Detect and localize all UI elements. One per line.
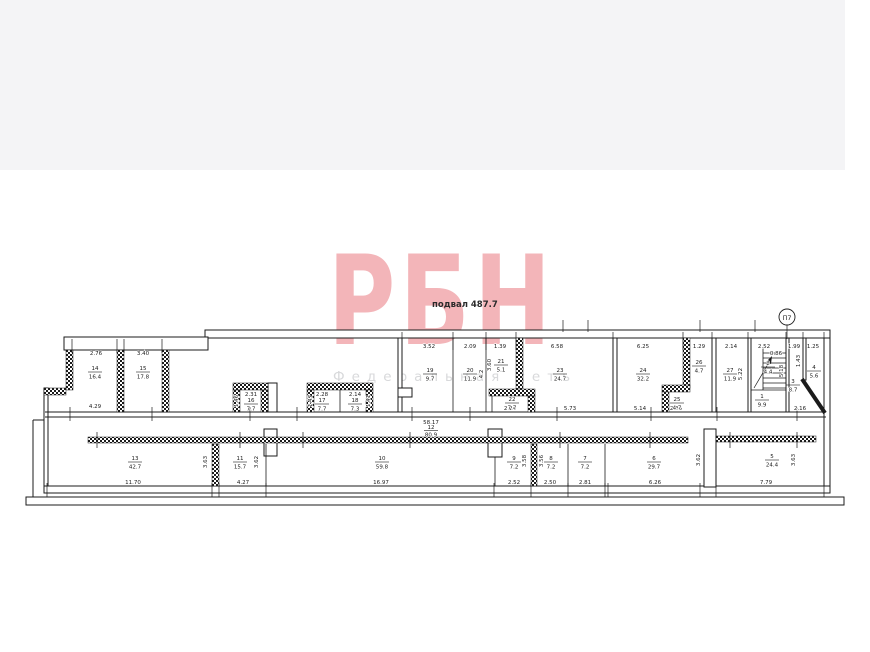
room-label: 19.9 [755, 394, 769, 409]
dim-label: 4.2 [479, 370, 485, 379]
svg-text:8: 8 [549, 456, 553, 462]
room-label: 2011.9 [463, 368, 477, 383]
svg-text:3: 3 [791, 379, 795, 385]
dim-label: 3.56 [539, 454, 545, 467]
svg-text:9: 9 [512, 456, 516, 462]
svg-text:16: 16 [248, 398, 255, 404]
dim-label: 1.41 [366, 395, 372, 407]
dim-label: 0.86 [770, 351, 783, 357]
svg-text:42.7: 42.7 [129, 465, 142, 471]
dim-label: 7.79 [760, 480, 773, 486]
svg-text:14: 14 [92, 366, 99, 372]
dim-label: 1.47 [308, 394, 314, 407]
svg-text:6: 6 [652, 456, 656, 462]
svg-text:7.7: 7.7 [318, 407, 327, 413]
svg-text:11: 11 [237, 456, 244, 462]
dim-label: 1.99 [788, 344, 801, 350]
dim-label: 3.63 [203, 455, 209, 468]
svg-text:29.7: 29.7 [648, 465, 661, 471]
room-label: 187.3 [348, 398, 362, 413]
svg-text:2: 2 [766, 361, 770, 367]
dim-label: 5.14 [634, 406, 647, 412]
dim-label: 2.16 [794, 406, 807, 412]
dim-label: 4.29 [89, 404, 102, 410]
dim-label: 5.18 [779, 364, 785, 377]
svg-text:4.7: 4.7 [695, 369, 704, 375]
room-label: 1280.9 [424, 425, 438, 439]
svg-text:1: 1 [760, 394, 764, 400]
dim-label: 16.97 [373, 480, 389, 486]
dim-label: 2.50 [544, 480, 557, 486]
dim-label: 3.62 [254, 456, 260, 468]
svg-text:7.3: 7.3 [351, 407, 360, 413]
svg-text:4.7: 4.7 [673, 406, 682, 412]
dim-label: 3.40 [137, 351, 150, 357]
svg-text:59.8: 59.8 [376, 465, 389, 471]
svg-text:15.7: 15.7 [234, 465, 247, 471]
dim-label: 2.76 [90, 351, 103, 357]
floor-plan: П7 подвал 487.7 2.76 3.40 4.29 2.31 2.28… [0, 0, 870, 652]
svg-text:16.4: 16.4 [89, 375, 102, 381]
page: РБН Федеральная сеть [0, 0, 870, 652]
svg-text:17: 17 [319, 398, 326, 404]
room-label: 77.2 [578, 456, 592, 471]
room-label: 1059.8 [375, 456, 389, 471]
room-label: 215.1 [494, 359, 508, 374]
room-label: 1342.7 [128, 456, 142, 471]
svg-text:7.2: 7.2 [547, 465, 556, 471]
room-label: 177.7 [315, 398, 329, 413]
dim-label: 6.25 [637, 344, 650, 350]
room-label: 629.7 [647, 456, 661, 471]
svg-text:24.4: 24.4 [766, 463, 779, 469]
room-label: 97.2 [507, 456, 521, 471]
svg-text:24.7: 24.7 [554, 377, 567, 383]
dim-label: 1.25 [807, 344, 820, 350]
svg-text:7.7: 7.7 [247, 407, 256, 413]
dim-label: 1.43 [796, 354, 802, 367]
room-label: 2324.7 [553, 368, 567, 383]
svg-text:80.9: 80.9 [425, 433, 438, 439]
dim-label: 11.70 [125, 480, 141, 486]
svg-text:13: 13 [132, 456, 139, 462]
dim-label: 3.52 [423, 344, 435, 350]
room-label: 1115.7 [233, 456, 247, 471]
room-label: 264.7 [692, 360, 706, 375]
dim-label: 6.58 [551, 344, 564, 350]
svg-text:9.9: 9.9 [758, 403, 767, 409]
room-label: 1517.8 [136, 366, 150, 381]
svg-text:18: 18 [352, 398, 359, 404]
dim-label: 3.58 [522, 454, 528, 467]
svg-text:27: 27 [727, 368, 734, 374]
svg-text:22: 22 [509, 397, 516, 403]
svg-text:7.2: 7.2 [581, 465, 590, 471]
svg-text:11.9: 11.9 [464, 377, 477, 383]
room-label: 199.7 [423, 368, 437, 383]
dim-label: 3.60 [487, 358, 493, 371]
svg-text:7: 7 [583, 456, 587, 462]
dim-label: 5.22 [738, 368, 744, 380]
svg-text:26: 26 [696, 360, 703, 366]
svg-text:4: 4 [812, 365, 816, 371]
room-label: 87.2 [544, 456, 558, 471]
svg-text:19: 19 [427, 368, 434, 374]
room-label: 167.7 [244, 398, 258, 413]
dim-label: 2.09 [464, 344, 477, 350]
svg-text:7.7: 7.7 [508, 406, 517, 412]
dim-label: 3.62 [696, 454, 702, 466]
svg-text:24: 24 [640, 368, 647, 374]
dim-label: 1.46 [234, 394, 240, 407]
svg-text:25: 25 [674, 397, 681, 403]
room-label: 2432.2 [636, 368, 650, 383]
svg-text:5.1: 5.1 [497, 368, 506, 374]
svg-text:5.6: 5.6 [810, 374, 819, 380]
svg-text:5: 5 [770, 454, 774, 460]
dim-label: 2.14 [725, 344, 738, 350]
svg-text:32.2: 32.2 [637, 377, 649, 383]
dim-label: 2.52 [758, 344, 770, 350]
dim-label: 1.39 [494, 344, 507, 350]
svg-text:9.7: 9.7 [426, 377, 435, 383]
svg-text:15: 15 [140, 366, 147, 372]
dim-label: 6.26 [649, 480, 662, 486]
dim-label: 3.63 [791, 453, 797, 466]
dim-label: 2.81 [579, 480, 591, 486]
svg-text:8.7: 8.7 [789, 388, 798, 394]
room-label: 2711.9 [723, 368, 737, 383]
svg-text:21: 21 [498, 359, 505, 365]
room-label: 227.7 [505, 397, 519, 412]
svg-text:17.8: 17.8 [137, 375, 150, 381]
dim-label: 2.52 [508, 480, 520, 486]
section-marker-label: П7 [782, 314, 791, 322]
room-label: 524.4 [765, 454, 779, 469]
room-label: 1416.4 [88, 366, 102, 381]
svg-text:7.2: 7.2 [510, 465, 519, 471]
svg-text:11.9: 11.9 [724, 377, 737, 383]
plan-title: подвал 487.7 [432, 300, 498, 310]
svg-text:23: 23 [557, 368, 564, 374]
svg-text:12: 12 [428, 425, 435, 431]
svg-text:4.4: 4.4 [764, 370, 773, 376]
svg-text:10: 10 [379, 456, 386, 462]
dim-label: 5.73 [564, 406, 577, 412]
dim-label: 4.27 [237, 480, 250, 486]
svg-text:20: 20 [467, 368, 474, 374]
dim-label: 1.29 [693, 344, 706, 350]
room-label: 45.6 [807, 365, 821, 380]
